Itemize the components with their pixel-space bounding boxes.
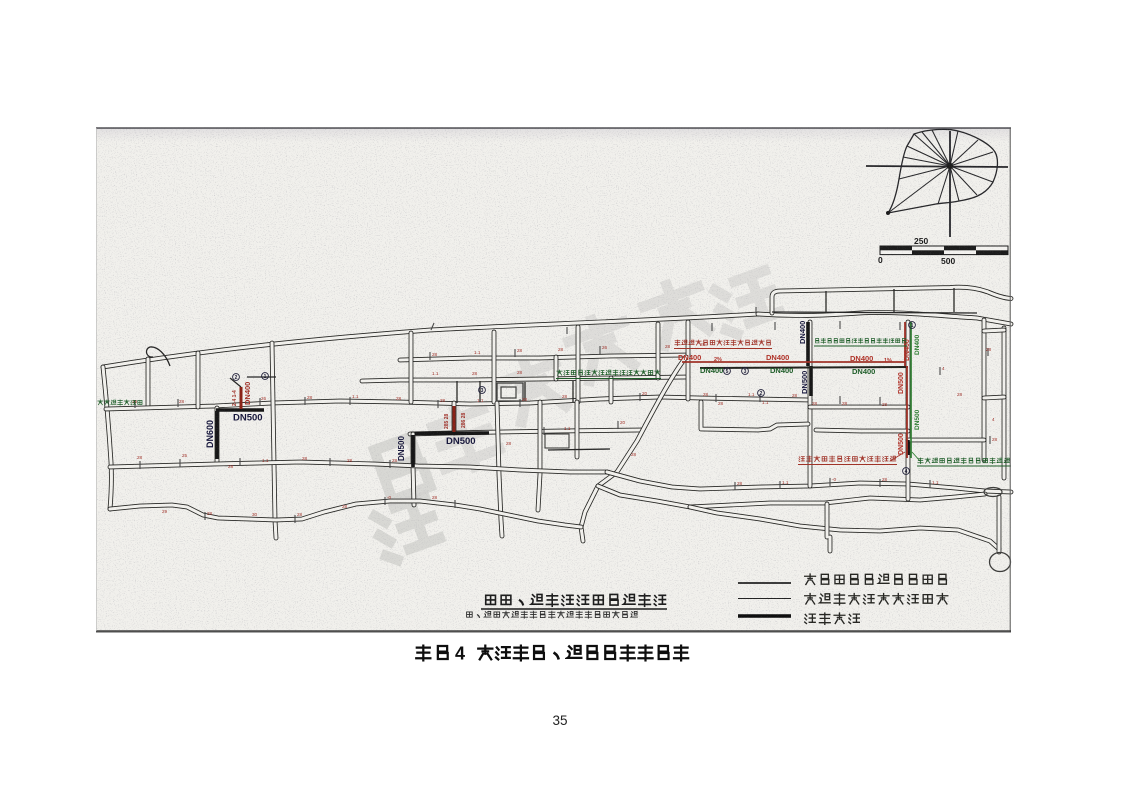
svg-text:35: 35 bbox=[552, 713, 567, 728]
svg-text:4: 4 bbox=[455, 644, 465, 664]
